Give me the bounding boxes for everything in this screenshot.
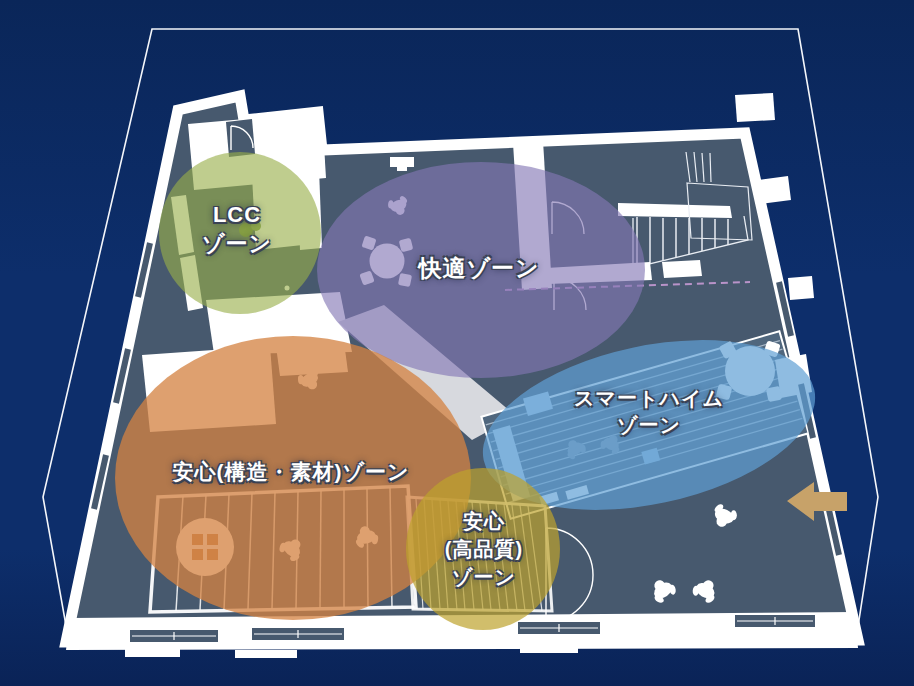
zone-label-line: スマートハイム — [574, 385, 724, 412]
zone-label-lcc: LCC ゾーン — [202, 200, 272, 258]
zone-label-kaiteki: 快適ゾーン — [418, 253, 539, 284]
zone-map-canvas: LCC ゾーン 快適ゾーン スマートハイム ゾーン 安心(構造・素材)ゾーン 安… — [0, 0, 914, 686]
zone-label-smart-heim: スマートハイム ゾーン — [574, 385, 724, 439]
zone-label-anshin-kozo: 安心(構造・素材)ゾーン — [173, 458, 410, 486]
zone-label-line: (高品質) — [445, 535, 523, 563]
zone-label-line: LCC — [202, 200, 272, 229]
zone-label-anshin-kohin: 安心 (高品質) ゾーン — [445, 507, 523, 591]
zone-label-line: 安心(構造・素材)ゾーン — [173, 458, 410, 486]
zone-label-line: 快適ゾーン — [418, 253, 539, 284]
zone-label-line: ゾーン — [574, 412, 724, 439]
tv-icon — [390, 157, 414, 167]
zone-label-line: 安心 — [445, 507, 523, 535]
zone-label-line: ゾーン — [445, 563, 523, 591]
zone-label-line: ゾーン — [202, 229, 272, 258]
